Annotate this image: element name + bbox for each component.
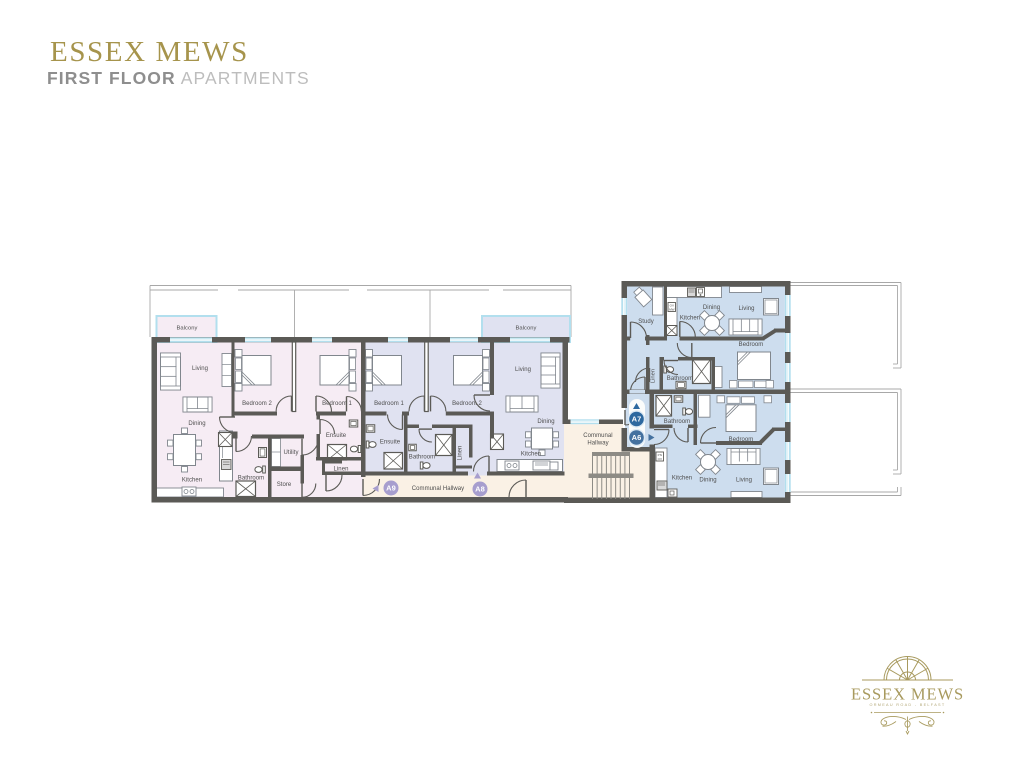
svg-text:Ensuite: Ensuite	[326, 433, 347, 439]
svg-text:Bedroom 1: Bedroom 1	[374, 401, 404, 407]
svg-text:Kitchen: Kitchen	[521, 452, 541, 458]
svg-text:Communal: Communal	[583, 433, 612, 439]
svg-text:ORMEAU ROAD - BELFAST: ORMEAU ROAD - BELFAST	[869, 703, 945, 707]
svg-text:Kitchen: Kitchen	[672, 476, 692, 482]
svg-text:Ensuite: Ensuite	[380, 440, 401, 446]
svg-text:MW: MW	[669, 307, 675, 311]
svg-text:Balcony: Balcony	[516, 326, 537, 332]
svg-text:Communal Hallway: Communal Hallway	[412, 486, 464, 492]
svg-text:Living: Living	[739, 306, 755, 312]
svg-text:Store: Store	[277, 482, 292, 488]
svg-text:Linen: Linen	[458, 446, 464, 461]
svg-text:Living: Living	[192, 366, 208, 372]
svg-text:Kitchen: Kitchen	[182, 478, 202, 484]
svg-text:Dining: Dining	[699, 478, 716, 484]
svg-text:OV: OV	[658, 457, 662, 461]
svg-text:FIRST FLOOR APARTMENTS: FIRST FLOOR APARTMENTS	[47, 68, 310, 88]
svg-text:Balcony: Balcony	[177, 326, 198, 332]
svg-text:A9: A9	[386, 484, 396, 493]
svg-text:ESSEX MEWS: ESSEX MEWS	[851, 685, 964, 704]
svg-text:Living: Living	[515, 367, 531, 373]
svg-text:A8: A8	[475, 485, 485, 494]
svg-text:Study: Study	[638, 319, 654, 325]
svg-text:Dining: Dining	[188, 421, 205, 427]
svg-text:Hallway: Hallway	[587, 441, 608, 447]
svg-text:Bedroom: Bedroom	[739, 342, 764, 348]
svg-text:A6: A6	[632, 433, 642, 442]
svg-text:Linen: Linen	[651, 369, 657, 383]
svg-text:Bathroom: Bathroom	[664, 419, 690, 425]
svg-text:Utility: Utility	[283, 450, 298, 456]
svg-text:Dining: Dining	[537, 419, 554, 425]
svg-text:Dining: Dining	[703, 305, 720, 311]
svg-text:Bedroom 1: Bedroom 1	[322, 401, 352, 407]
svg-text:ESSEX MEWS: ESSEX MEWS	[50, 36, 249, 68]
svg-text:Bedroom 2: Bedroom 2	[242, 401, 272, 407]
svg-text:Bathroom: Bathroom	[409, 455, 435, 461]
svg-text:A7: A7	[632, 415, 642, 424]
svg-text:Kitchen: Kitchen	[680, 316, 700, 322]
svg-text:Living: Living	[736, 478, 752, 484]
